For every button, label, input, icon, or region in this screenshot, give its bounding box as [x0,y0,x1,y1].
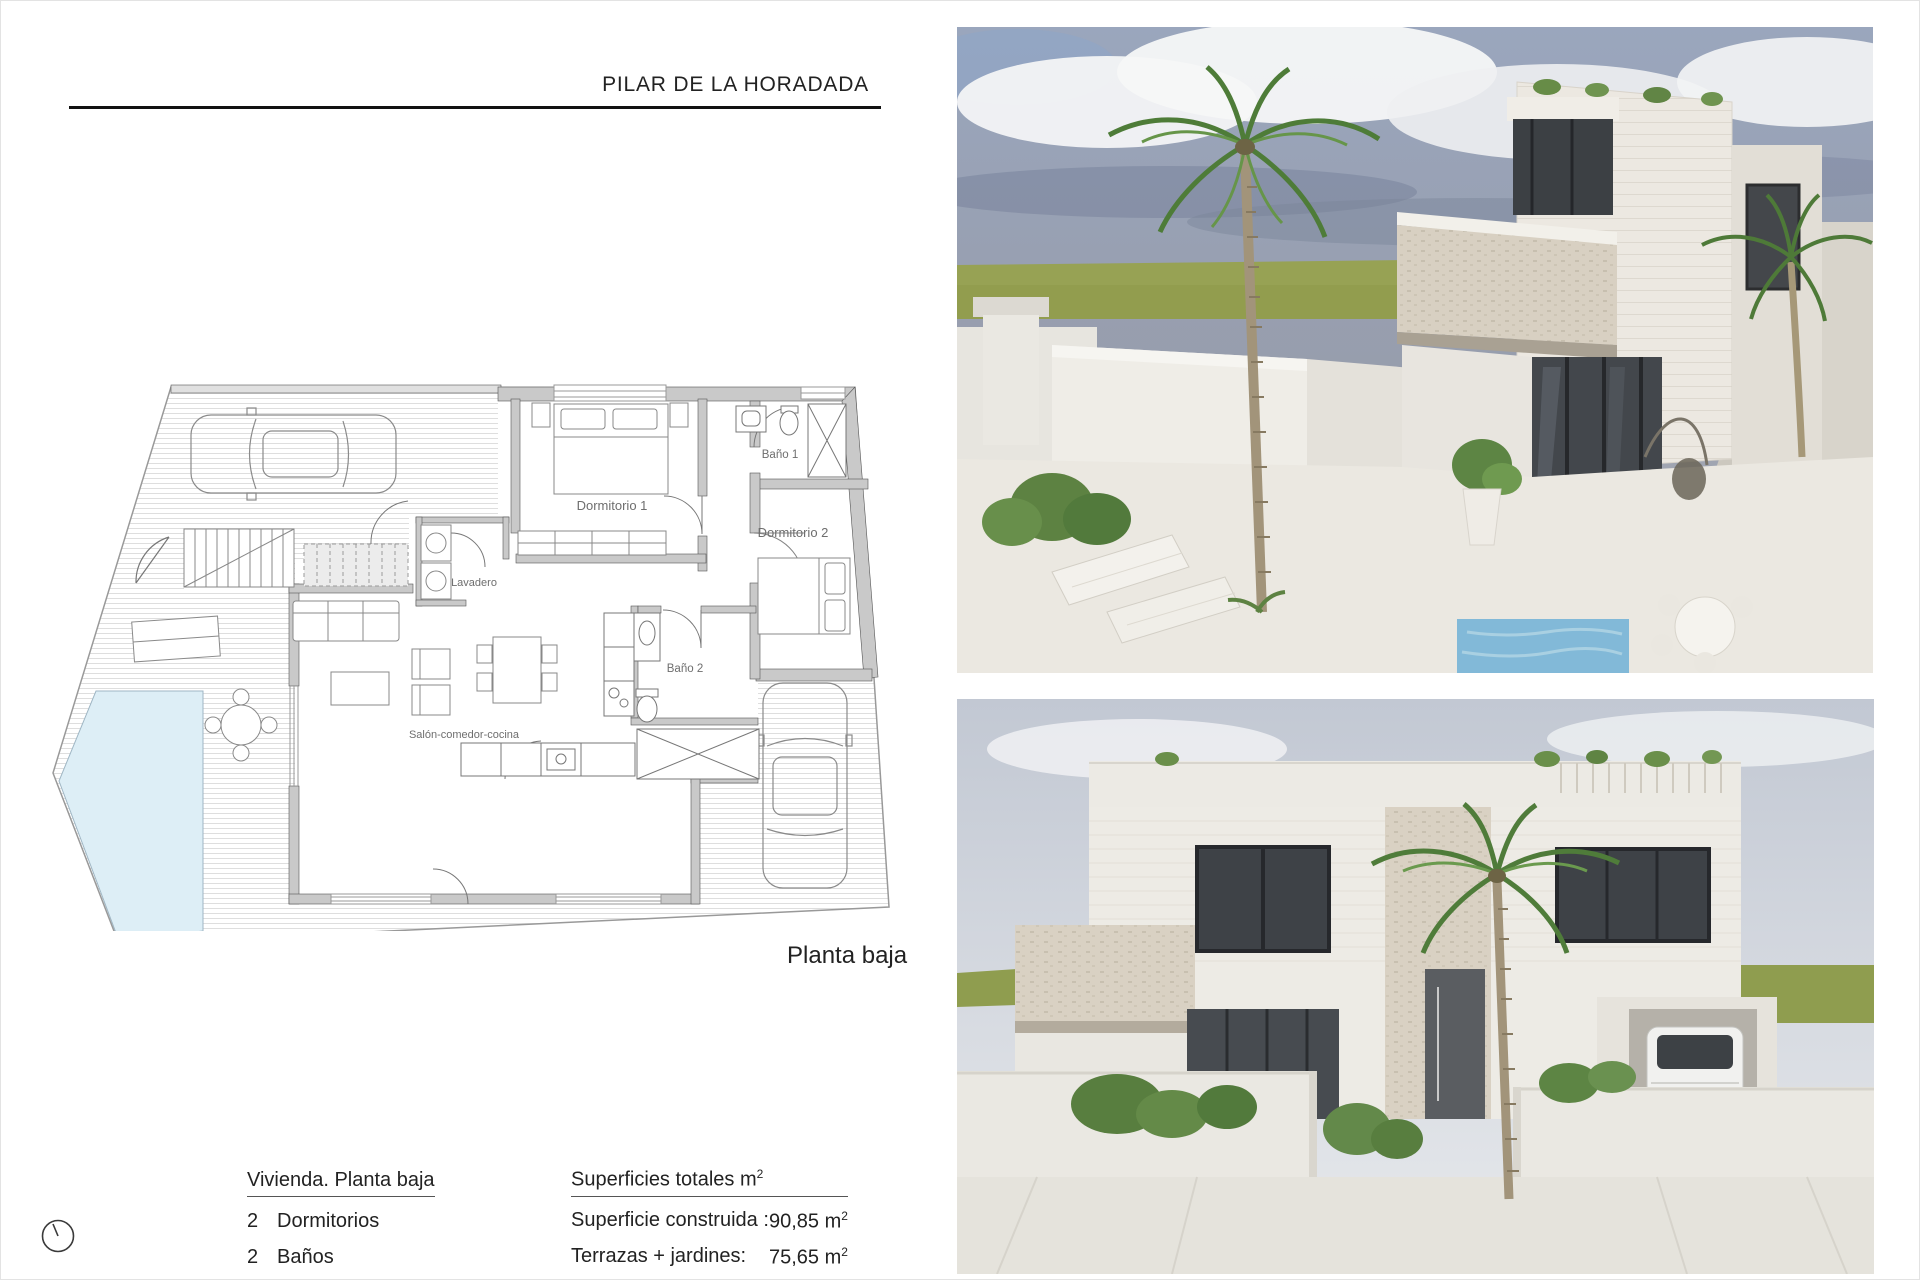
label-lavadero: Lavadero [451,577,497,589]
built-surface-value: 90,85 m2 [769,1209,848,1234]
dwelling-summary: Vivienda. Planta baja 2Dormitorios 2Baño… [247,1169,435,1269]
bedrooms-row: 2Dormitorios [247,1210,435,1233]
built-surface-label: Superficie construida : [571,1209,769,1234]
label-bano-1: Baño 1 [762,449,798,461]
surface-totals: Superficies totales m2 Superficie constr… [571,1167,848,1270]
bathrooms-count: 2 [247,1246,277,1269]
title-rule [69,106,881,109]
stairs [184,529,294,587]
summary-heading: Vivienda. Planta baja [247,1169,435,1197]
bed-2 [758,558,850,634]
label-dormitorio-2: Dormitorio 2 [758,525,829,540]
terraces-row: Terrazas + jardines: 75,65 m2 [571,1245,848,1270]
bed-1 [532,403,688,494]
label-bano-2: Baño 2 [667,663,703,675]
bathrooms-row: 2Baños [247,1246,435,1269]
built-surface-row: Superficie construida : 90,85 m2 [571,1209,848,1234]
wardrobe [518,531,666,555]
terraces-label: Terrazas + jardines: [571,1245,769,1270]
surfaces-heading: Superficies totales m2 [571,1167,848,1197]
render-exterior-top [957,27,1873,673]
north-indicator-icon [39,1217,79,1257]
render-exterior-bottom [957,699,1874,1274]
plan-caption: Planta baja [787,942,907,970]
label-salon: Salón-comedor-cocina [409,729,520,741]
entry-steps [304,544,408,586]
label-dormitorio-1: Dormitorio 1 [577,498,648,513]
pool-render [1457,619,1629,673]
terraces-value: 75,65 m2 [769,1245,848,1270]
floor-plan: Dormitorio 1 Baño 1 Dormitorio 2 Lavader… [41,301,901,931]
bedrooms-label: Dormitorios [277,1210,379,1232]
page-title: PILAR DE LA HORADADA [1,73,869,97]
floor-plan-svg: Dormitorio 1 Baño 1 Dormitorio 2 Lavader… [41,301,901,931]
driveway [957,1177,1874,1274]
document-page: PILAR DE LA HORADADA [0,0,1920,1280]
bathrooms-label: Baños [277,1246,334,1268]
bedrooms-count: 2 [247,1210,277,1233]
